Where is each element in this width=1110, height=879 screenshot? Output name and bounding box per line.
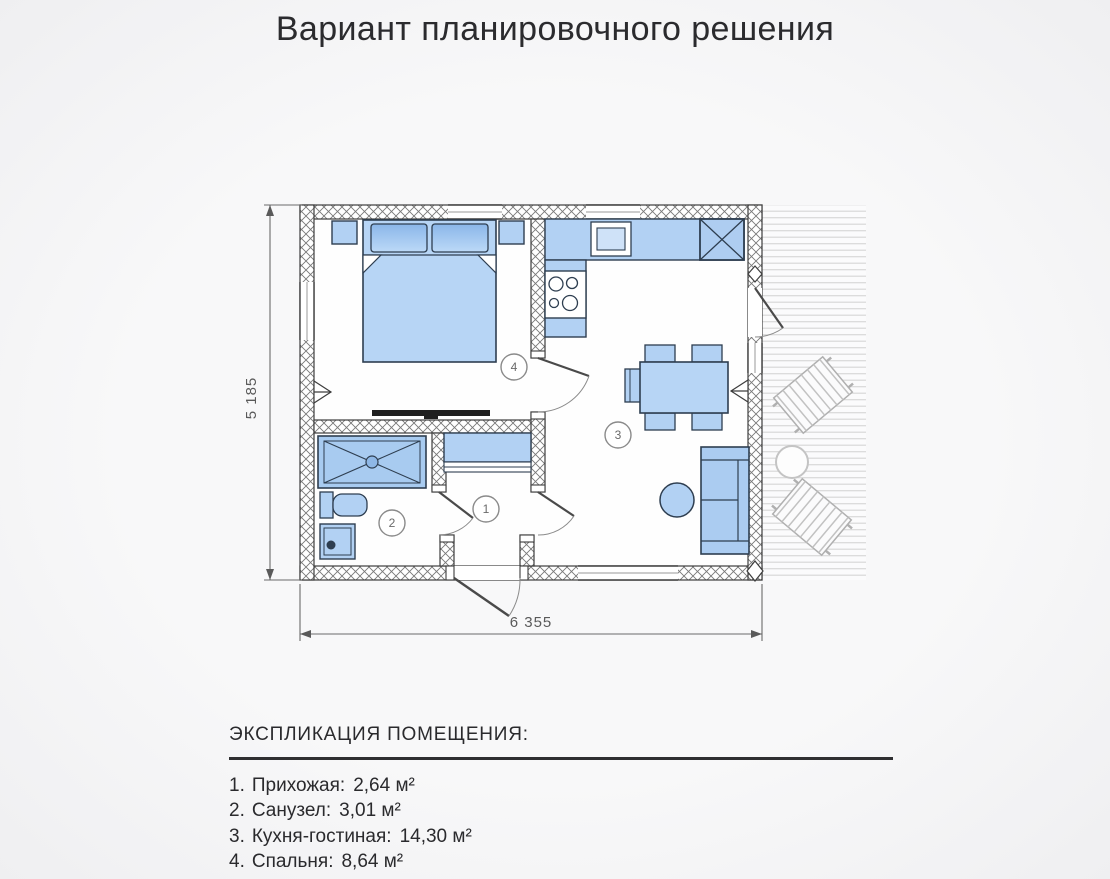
shower-icon <box>318 436 426 488</box>
room-badge-hallway: 1 <box>473 496 499 522</box>
oven-icon <box>591 222 631 256</box>
double-bed-icon <box>363 220 496 362</box>
legend-item-bathroom: 2.Санузел:3,01 м² <box>229 798 893 824</box>
pillow-icon <box>371 224 427 252</box>
wall-bedroom-kitchen <box>531 219 545 358</box>
legend-item-area: 3,01 м² <box>339 800 401 821</box>
entrance-door-opening <box>454 566 520 580</box>
window-top-kitchen <box>586 205 640 219</box>
legend-item-kitchen-living: 3.Кухня-гостиная:14,30 м² <box>229 824 893 850</box>
legend-rows: 1.Прихожая:2,64 м² 2.Санузел:3,01 м² 3.К… <box>229 773 893 875</box>
legend-item-area: 8,64 м² <box>341 851 403 872</box>
washbasin-icon <box>320 524 355 559</box>
toilet-icon <box>320 492 367 518</box>
svg-text:1: 1 <box>483 502 490 516</box>
hallway <box>444 433 531 472</box>
legend-item-label: Прихожая: <box>252 775 345 796</box>
legend-item-area: 2,64 м² <box>353 775 415 796</box>
svg-text:3: 3 <box>615 428 622 442</box>
legend-item-bedroom: 4.Спальня:8,64 м² <box>229 849 893 875</box>
wall-hall-living-upper <box>531 412 545 492</box>
wall-bedroom-bottom <box>314 420 545 433</box>
legend-item-number: 1. <box>229 775 245 796</box>
room-badge-bedroom: 4 <box>501 354 527 380</box>
legend-heading: ЭКСПЛИКАЦИЯ ПОМЕЩЕНИЯ: <box>229 724 893 746</box>
window-left-bedroom <box>300 282 314 340</box>
legend-item-hallway: 1.Прихожая:2,64 м² <box>229 773 893 799</box>
wall-exterior-right <box>748 205 762 580</box>
legend-item-label: Санузел: <box>252 800 331 821</box>
window-right-living <box>748 343 762 373</box>
window-bottom-living <box>578 566 678 580</box>
coffee-table-icon <box>660 483 694 517</box>
legend-item-label: Спальня: <box>252 851 334 872</box>
wall-exterior-bottom <box>300 566 762 580</box>
legend-item-number: 2. <box>229 800 245 821</box>
legend-item-area: 14,30 м² <box>400 826 472 847</box>
sofa-icon <box>701 447 749 554</box>
stove-icon <box>545 271 586 318</box>
svg-text:2: 2 <box>389 516 396 530</box>
wall-exterior-left <box>300 205 314 580</box>
legend-item-number: 4. <box>229 851 245 872</box>
window-top-bedroom <box>448 205 502 219</box>
wardrobe-icon <box>444 433 531 472</box>
legend-item-number: 3. <box>229 826 245 847</box>
chair-icon <box>625 369 641 402</box>
dimension-width: 6 355 <box>300 584 762 641</box>
chair-icon <box>645 413 675 430</box>
svg-text:4: 4 <box>511 360 518 374</box>
dimension-height-label: 5 185 <box>243 377 260 420</box>
wall-exterior-top <box>300 205 762 219</box>
chair-icon <box>645 345 675 362</box>
entrance-door-icon <box>454 578 520 616</box>
room-badge-bathroom: 2 <box>379 510 405 536</box>
pillow-icon <box>432 224 488 252</box>
sink-icon <box>700 219 744 260</box>
legend-divider <box>229 757 893 760</box>
nightstand-icon <box>332 221 357 244</box>
room-badge-kitchen-living: 3 <box>605 422 631 448</box>
terrace <box>762 205 866 580</box>
nightstand-icon <box>499 221 524 244</box>
chair-icon <box>692 413 722 430</box>
page: Вариант планировочного решения <box>0 0 1110 879</box>
dimension-height: 5 185 <box>243 205 302 580</box>
dimension-width-label: 6 355 <box>510 614 553 631</box>
legend: ЭКСПЛИКАЦИЯ ПОМЕЩЕНИЯ: 1.Прихожая:2,64 м… <box>229 724 893 875</box>
legend-item-label: Кухня-гостиная: <box>252 826 392 847</box>
chair-icon <box>692 345 722 362</box>
terrace-table-icon <box>776 446 808 478</box>
